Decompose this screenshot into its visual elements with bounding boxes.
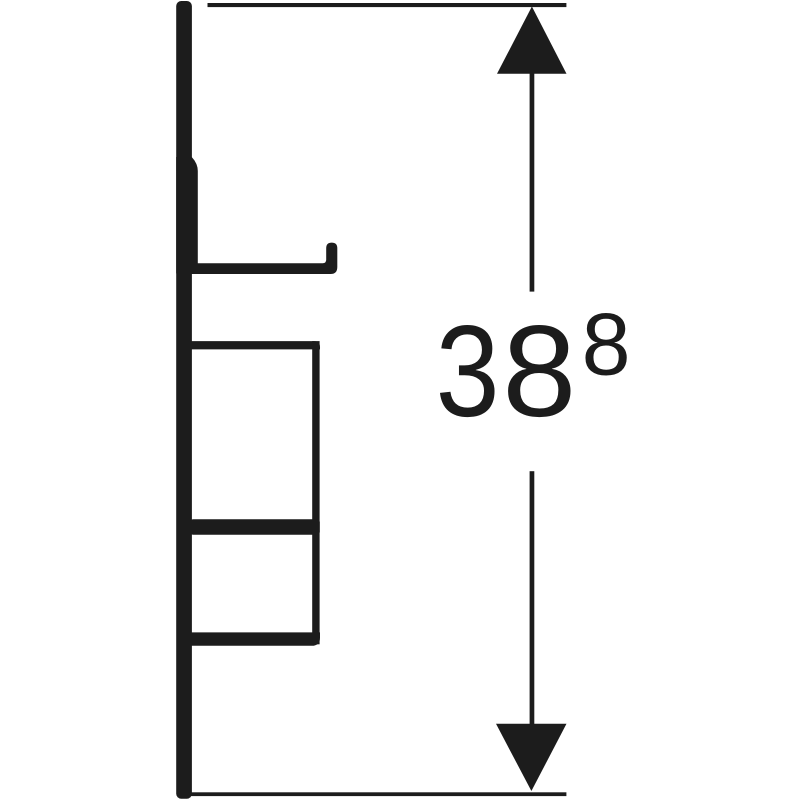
svg-text:8: 8 — [502, 298, 576, 444]
svg-text:8: 8 — [582, 294, 631, 393]
svg-text:3: 3 — [436, 298, 500, 444]
